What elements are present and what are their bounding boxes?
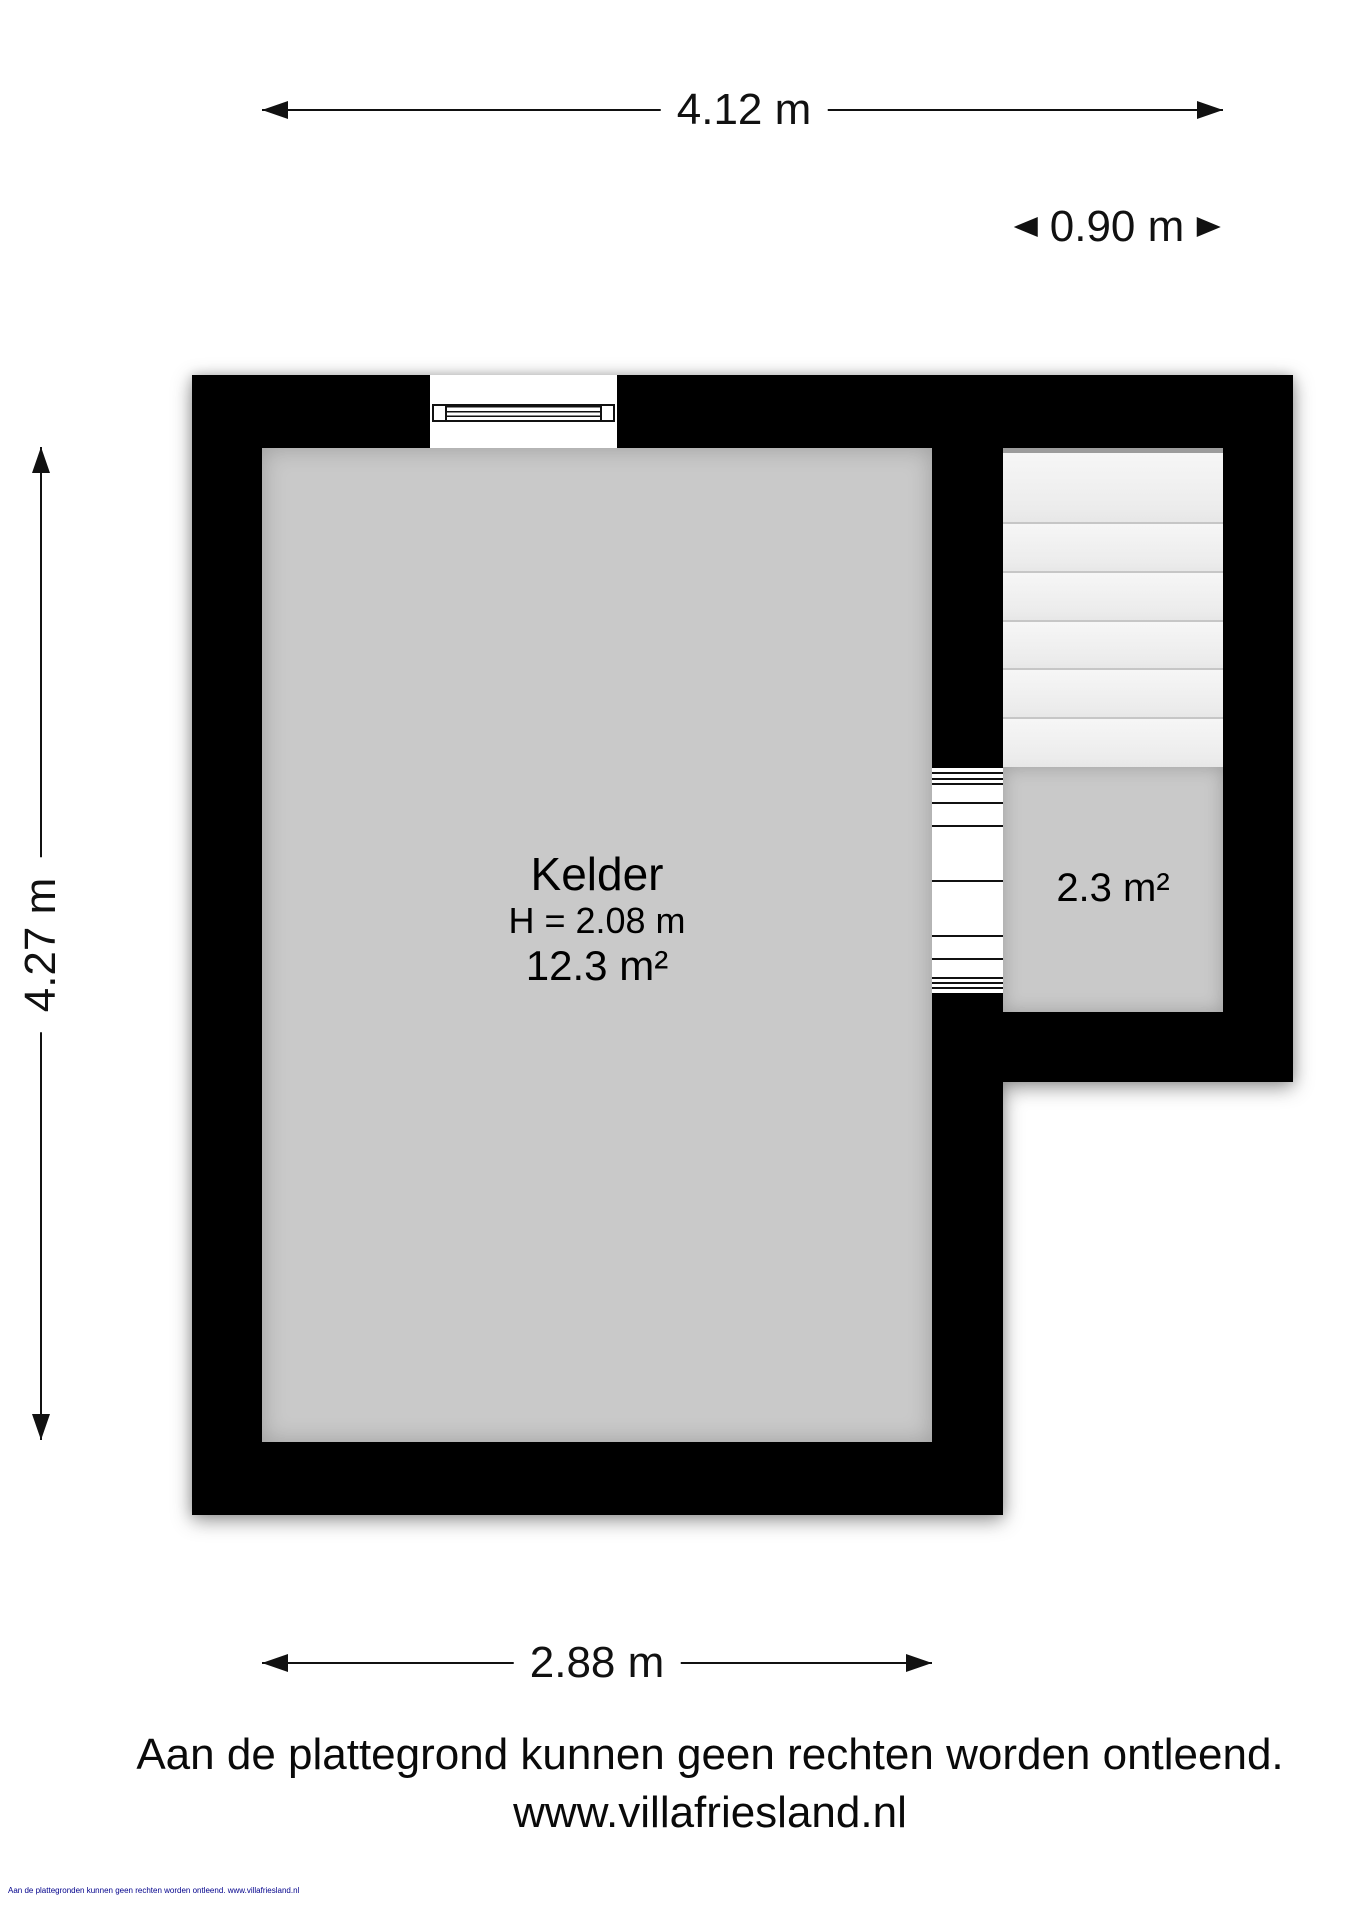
dimension-top-label: 4.12 m <box>661 85 828 135</box>
step-line <box>932 802 1003 804</box>
basement-steps-opening <box>932 768 1003 993</box>
wall-left <box>192 375 262 1515</box>
step-line <box>932 825 1003 827</box>
dimension-stairs-width-label: 0.90 m <box>1050 202 1185 252</box>
arrow-right-icon <box>1197 101 1223 119</box>
stair-tread <box>1003 622 1223 670</box>
step-line <box>932 977 1003 979</box>
floorplan-page: 4.12 m 0.90 m 4.27 m 2.88 m <box>0 0 1358 1920</box>
dimension-bottom-label: 2.88 m <box>514 1638 681 1688</box>
step-line <box>932 958 1003 960</box>
step-line <box>932 778 1003 780</box>
footer-website: www.villafriesland.nl <box>62 1784 1358 1842</box>
room-area: 12.3 m² <box>262 944 932 988</box>
stair-tread <box>1003 453 1223 524</box>
wall-top <box>192 375 1293 448</box>
stair-tread <box>1003 719 1223 767</box>
step-line <box>932 935 1003 937</box>
fine-print: Aan de plattegronden kunnen geen rechten… <box>8 1886 299 1895</box>
room-name: Kelder <box>262 850 932 898</box>
step-line <box>932 987 1003 989</box>
window-symbol <box>430 375 617 448</box>
wall-right <box>1223 375 1293 1082</box>
wall-bottom <box>192 1442 1003 1515</box>
dimension-left-label: 4.27 m <box>16 858 66 1033</box>
arrow-left-icon <box>262 1654 288 1672</box>
footer-disclaimer: Aan de plattegrond kunnen geen rechten w… <box>62 1726 1358 1784</box>
stair-tread <box>1003 573 1223 622</box>
arrow-up-icon <box>32 447 50 473</box>
window-glazing-icon <box>432 404 615 422</box>
arrow-right-icon <box>1196 217 1220 237</box>
step-line <box>932 772 1003 774</box>
room-label-stairwell: 2.3 m² <box>1003 868 1223 908</box>
arrow-left-icon <box>262 101 288 119</box>
room-ceiling-height: H = 2.08 m <box>262 898 932 944</box>
wall-notch-bottom <box>932 1012 1293 1082</box>
arrow-left-icon <box>1014 217 1038 237</box>
arrow-down-icon <box>32 1414 50 1440</box>
stair-tread <box>1003 670 1223 719</box>
step-line <box>932 783 1003 785</box>
room-label-kelder: Kelder H = 2.08 m 12.3 m² <box>262 850 932 988</box>
footer: Aan de plattegrond kunnen geen rechten w… <box>62 1726 1358 1842</box>
staircase <box>1003 448 1223 767</box>
stair-tread <box>1003 524 1223 573</box>
arrow-right-icon <box>906 1654 932 1672</box>
building-outline: Kelder H = 2.08 m 12.3 m² 2.3 m² <box>192 375 1293 1515</box>
dimension-stairs-width: 0.90 m <box>1014 202 1221 252</box>
step-line <box>932 880 1003 882</box>
step-line <box>932 982 1003 984</box>
